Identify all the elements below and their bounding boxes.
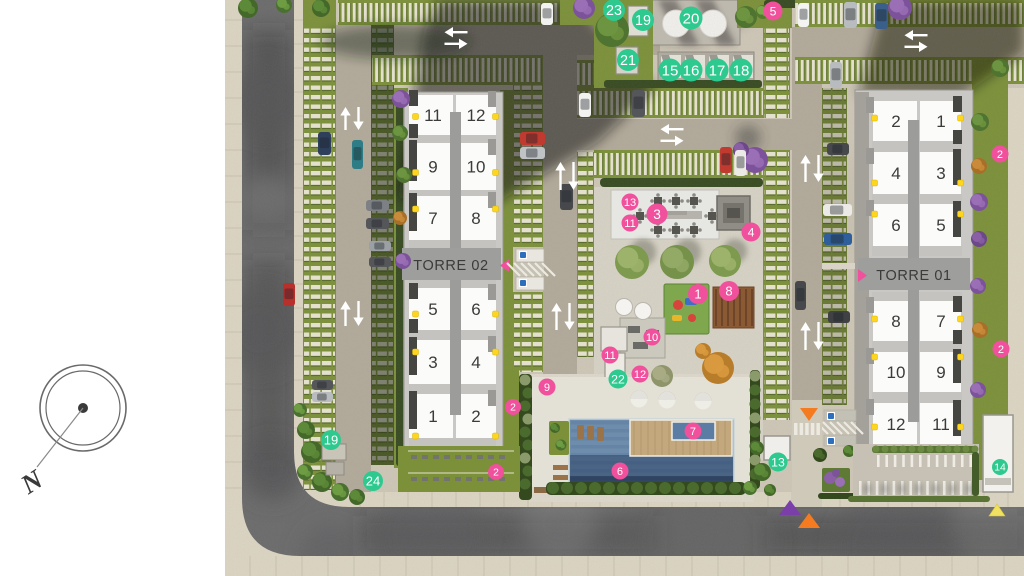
svg-text:3: 3 (428, 353, 437, 372)
svg-text:17: 17 (709, 62, 726, 79)
svg-text:9: 9 (936, 363, 945, 382)
svg-text:15: 15 (662, 62, 679, 79)
svg-text:10: 10 (887, 363, 906, 382)
svg-text:8: 8 (891, 312, 900, 331)
svg-text:6: 6 (617, 466, 623, 478)
svg-text:5: 5 (770, 4, 777, 18)
svg-text:22: 22 (611, 372, 625, 386)
svg-text:7: 7 (428, 209, 437, 228)
svg-text:20: 20 (683, 10, 700, 27)
svg-text:TORRE 02: TORRE 02 (413, 258, 488, 274)
svg-text:8: 8 (725, 284, 732, 299)
svg-text:12: 12 (634, 369, 646, 381)
svg-text:5: 5 (936, 216, 945, 235)
svg-text:1: 1 (694, 287, 701, 302)
svg-text:18: 18 (733, 62, 750, 79)
svg-text:19: 19 (324, 433, 338, 448)
svg-text:8: 8 (471, 209, 480, 228)
svg-text:11: 11 (424, 106, 442, 125)
svg-text:4: 4 (748, 225, 755, 239)
svg-text:13: 13 (771, 455, 785, 469)
svg-text:2: 2 (493, 468, 499, 479)
svg-text:2: 2 (998, 344, 1004, 356)
svg-text:16: 16 (683, 62, 700, 79)
svg-text:24: 24 (366, 474, 380, 489)
svg-text:7: 7 (690, 426, 696, 438)
svg-text:12: 12 (887, 415, 906, 434)
svg-text:21: 21 (620, 53, 636, 69)
svg-text:TORRE 01: TORRE 01 (876, 268, 951, 284)
svg-text:10: 10 (467, 158, 486, 177)
svg-text:9: 9 (544, 382, 550, 394)
svg-text:2: 2 (997, 149, 1003, 161)
svg-text:6: 6 (471, 300, 480, 319)
svg-text:1: 1 (936, 112, 945, 131)
svg-text:2: 2 (510, 403, 516, 414)
svg-text:13: 13 (624, 197, 636, 209)
svg-text:11: 11 (604, 350, 616, 362)
svg-text:4: 4 (891, 164, 900, 183)
svg-text:7: 7 (936, 312, 945, 331)
svg-text:1: 1 (428, 407, 437, 426)
svg-text:11: 11 (624, 218, 636, 230)
svg-text:11: 11 (932, 415, 950, 434)
svg-text:23: 23 (606, 3, 622, 19)
svg-text:3: 3 (653, 207, 661, 222)
svg-text:2: 2 (471, 407, 480, 426)
svg-text:14: 14 (994, 463, 1006, 474)
svg-text:2: 2 (891, 112, 900, 131)
svg-text:12: 12 (467, 106, 486, 125)
svg-text:4: 4 (471, 353, 480, 372)
svg-text:9: 9 (428, 158, 437, 177)
svg-text:10: 10 (646, 332, 658, 344)
svg-text:3: 3 (936, 164, 945, 183)
svg-text:19: 19 (635, 13, 651, 29)
svg-text:5: 5 (428, 300, 437, 319)
svg-text:6: 6 (891, 216, 900, 235)
